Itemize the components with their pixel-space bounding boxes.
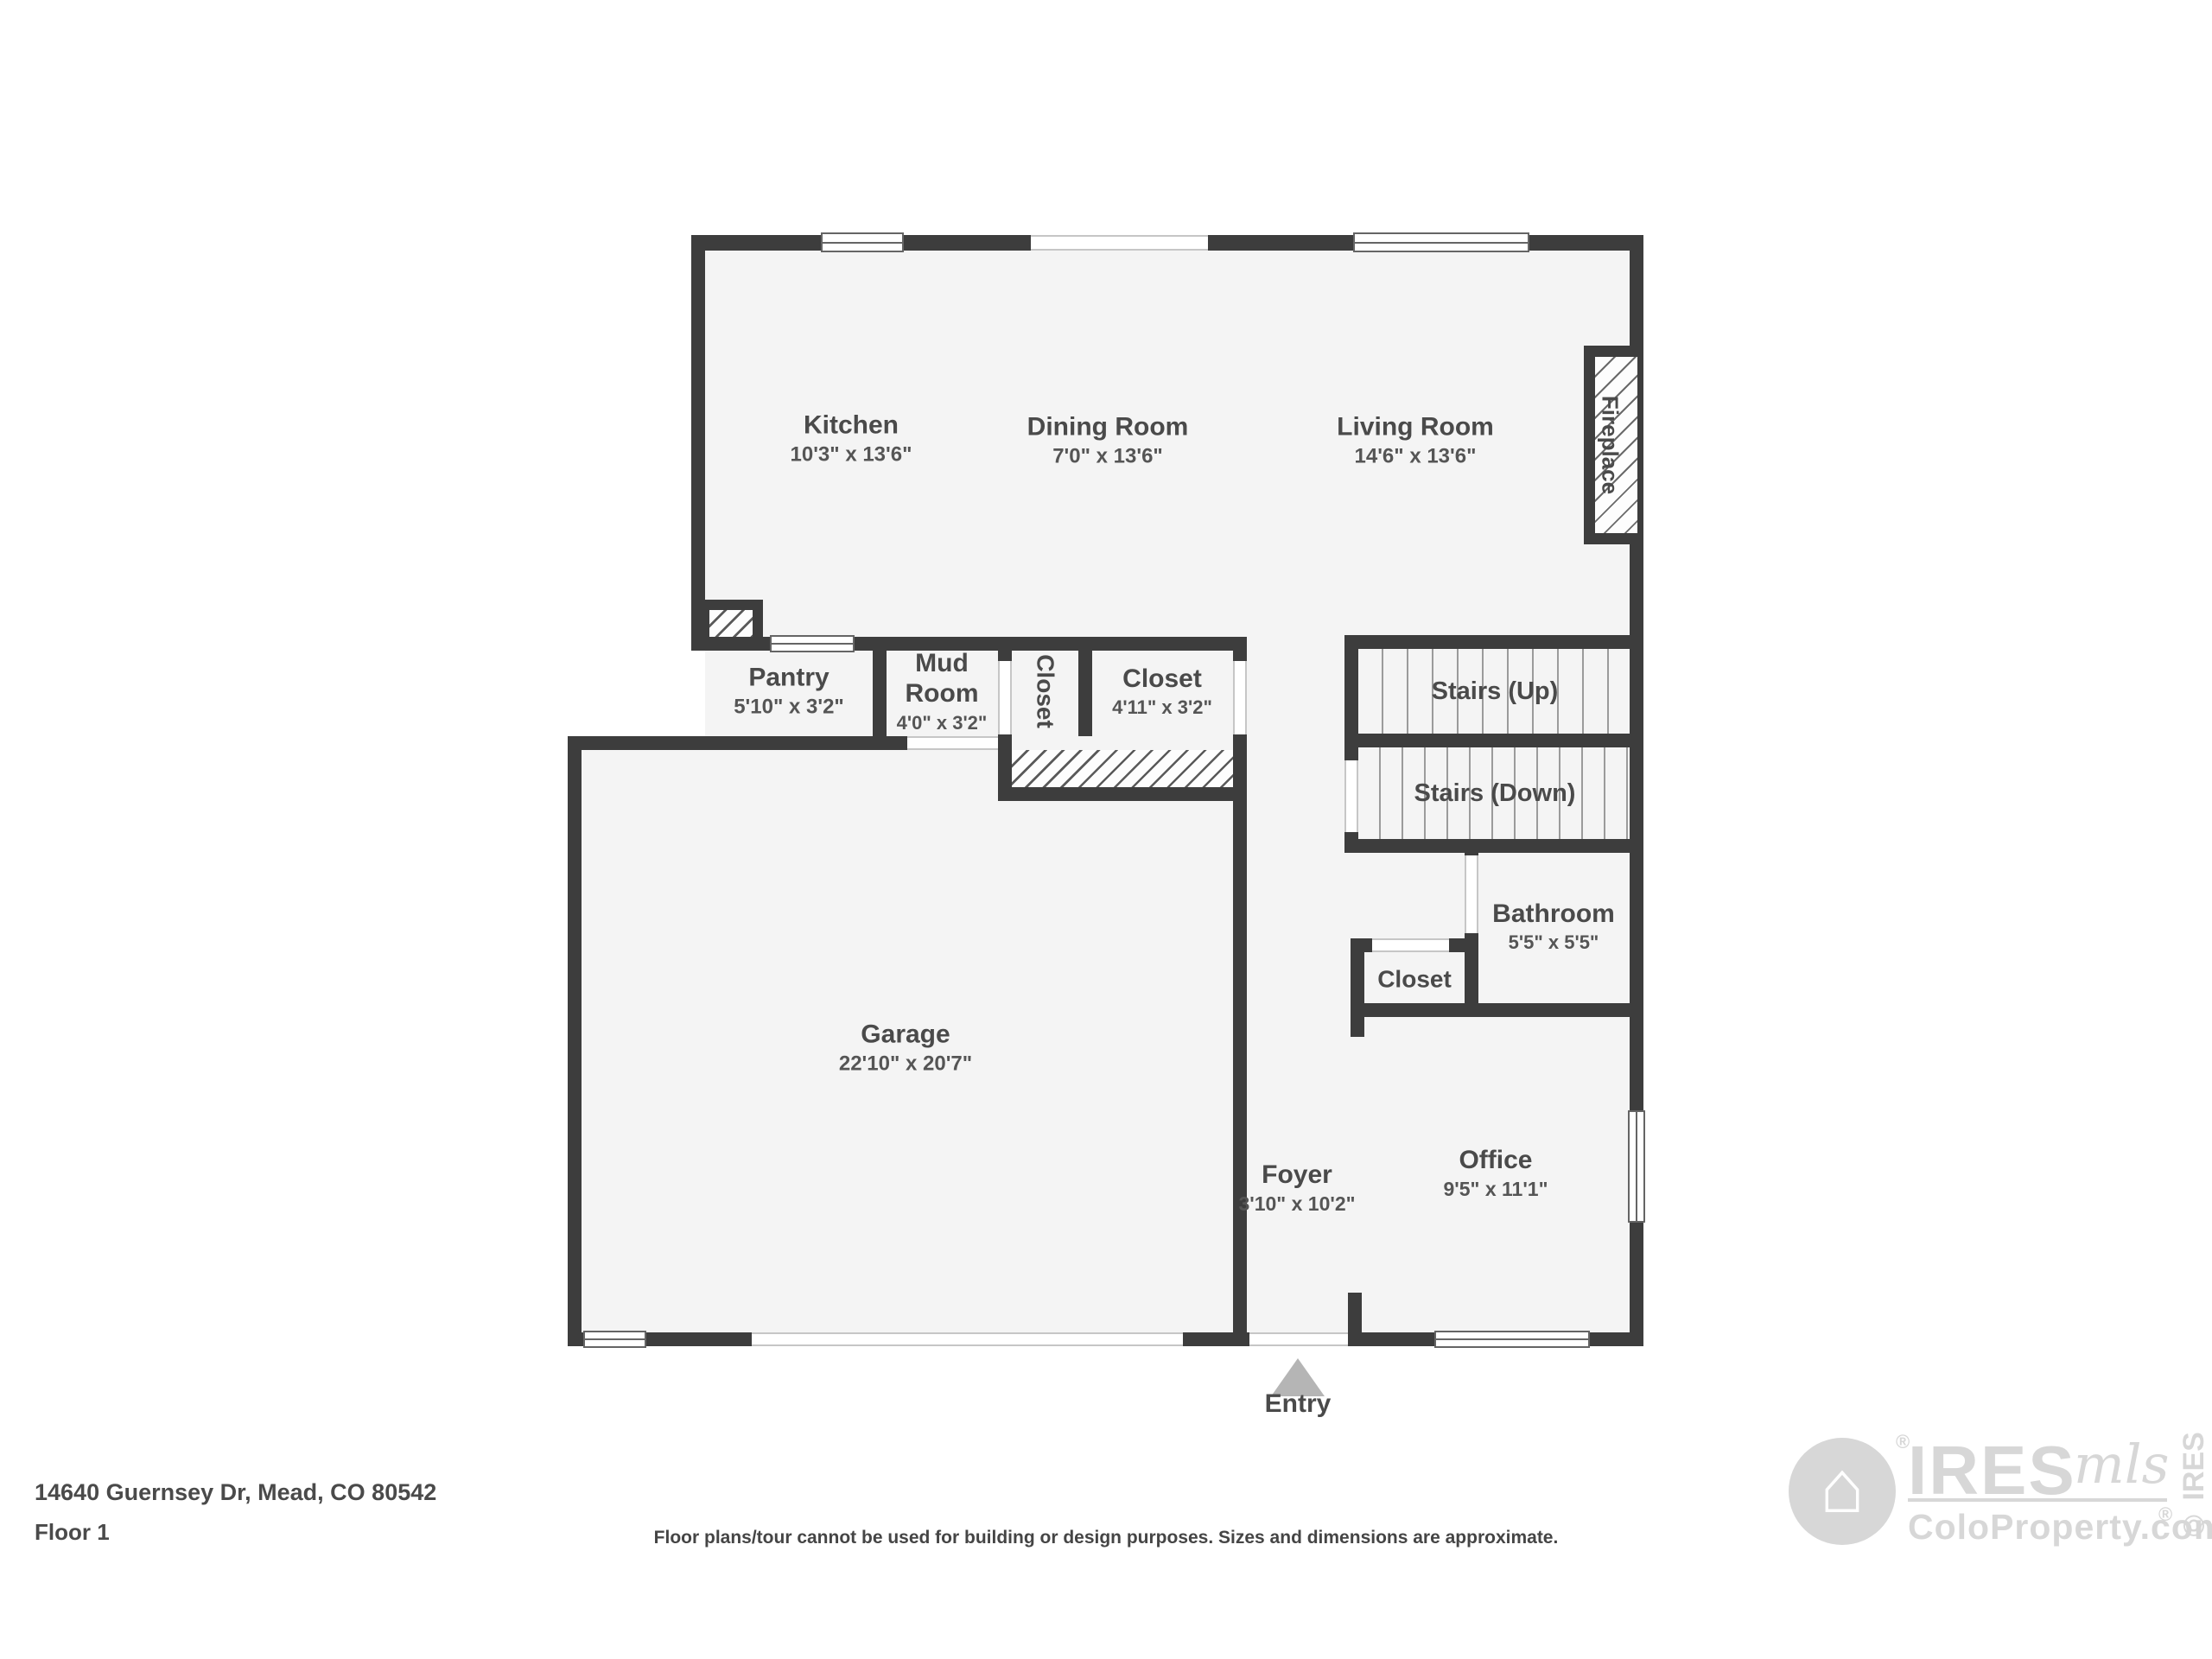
room-closet-mud-dims: 4'11" x 3'2" (1112, 696, 1212, 719)
mls-script: mls (2074, 1438, 2169, 1491)
room-mud-dims: 4'0" x 3'2" (885, 712, 999, 734)
wall-band-bottom (998, 787, 1247, 801)
fireplace-label: Fireplace (1597, 396, 1624, 494)
room-stairs-up-name: Stairs (Up) (1432, 677, 1559, 706)
opening-mudroom-door (907, 736, 998, 750)
room-dining-dims: 7'0" x 13'6" (1027, 445, 1189, 469)
floor-plan-page: Fireplace Kitchen 10'3" x 13'6" Dining R… (0, 0, 2212, 1659)
room-bathroom-dims: 5'5" x 5'5" (1492, 931, 1615, 954)
window-pantry-top (770, 635, 855, 652)
room-closet-mud: Closet 4'11" x 3'2" (1112, 664, 1212, 719)
window-kitchen-top (821, 232, 904, 252)
opening-closet-hall-door (998, 661, 1012, 734)
room-foyer: Foyer 3'10" x 10'2" (1238, 1160, 1355, 1217)
room-foyer-dims: 3'10" x 10'2" (1238, 1193, 1355, 1217)
wall-entry-stub (1348, 1293, 1362, 1346)
house-glyph-icon: ⌂ (1820, 1450, 1865, 1524)
room-office-name: Office (1443, 1145, 1548, 1175)
ires-logo: ⌂ ® IRES mls ColoProperty.com ® © IRES (1782, 1427, 2212, 1566)
room-bathroom-name: Bathroom (1492, 899, 1615, 929)
hatch-band-above-garage (1012, 750, 1233, 787)
room-office-dims: 9'5" x 11'1" (1443, 1179, 1548, 1202)
address-text: 14640 Guernsey Dr, Mead, CO 80542 (35, 1479, 436, 1506)
room-dining-name: Dining Room (1027, 412, 1189, 442)
room-stairs-down-name: Stairs (Down) (1414, 779, 1576, 808)
room-mud: Mud Room 4'0" x 3'2" (885, 648, 999, 734)
room-living: Living Room 14'6" x 13'6" (1337, 412, 1494, 470)
room-pantry: Pantry 5'10" x 3'2" (734, 663, 844, 721)
wall-stairs-middle (1344, 734, 1643, 747)
room-kitchen-dims: 10'3" x 13'6" (791, 443, 912, 467)
room-dining: Dining Room 7'0" x 13'6" (1027, 412, 1189, 470)
room-kitchen-name: Kitchen (791, 410, 912, 441)
room-closet-hall: Closet (1031, 654, 1059, 728)
opening-entry-door (1249, 1332, 1348, 1346)
room-pantry-name: Pantry (734, 663, 844, 693)
copyright-vertical-text: © IRES (2177, 1429, 2211, 1541)
room-stairs-down: Stairs (Down) (1414, 779, 1576, 808)
room-stairs-up: Stairs (Up) (1432, 677, 1559, 706)
room-office: Office 9'5" x 11'1" (1443, 1145, 1548, 1202)
wall-closet-divider (1078, 637, 1092, 736)
wall-garage-left (568, 736, 582, 1346)
opening-stairs-down (1344, 760, 1358, 832)
room-foyer-name: Foyer (1238, 1160, 1355, 1190)
room-closet-mud-name: Closet (1112, 664, 1212, 694)
room-living-dims: 14'6" x 13'6" (1337, 445, 1494, 469)
room-garage-name: Garage (839, 1020, 972, 1050)
wall-stairs-top (1344, 635, 1643, 649)
room-living-name: Living Room (1337, 412, 1494, 442)
wall-office-top (1351, 1003, 1643, 1017)
room-mud-name: Mud Room (885, 648, 999, 709)
room-closet-hall-name: Closet (1031, 654, 1059, 728)
opening-dining-top (1031, 235, 1208, 251)
wall-closet-bath-left (1351, 938, 1364, 1037)
opening-garage-door (752, 1332, 1183, 1346)
hatch-box-fill (709, 610, 753, 639)
window-garage-bottom (583, 1331, 646, 1348)
wall-left-upper (691, 235, 705, 651)
room-pantry-dims: 5'10" x 3'2" (734, 696, 844, 720)
opening-bathroom-door (1465, 855, 1478, 933)
wall-stairs-bottom (1344, 839, 1643, 853)
room-closet-bath-name: Closet (1377, 964, 1452, 993)
room-garage-dims: 22'10" x 20'7" (839, 1052, 972, 1077)
wall-garage-right (1233, 637, 1247, 1346)
site-registered-mark: ® (2158, 1503, 2172, 1526)
entry-label: Entry (1265, 1389, 1332, 1419)
window-living-top (1353, 232, 1529, 252)
disclaimer-text: Floor plans/tour cannot be used for buil… (654, 1528, 1559, 1548)
window-office-bottom (1434, 1331, 1590, 1348)
window-office-right (1628, 1110, 1645, 1223)
ires-house-icon: ⌂ (1789, 1438, 1896, 1545)
logo-divider (1908, 1498, 2167, 1502)
room-bathroom: Bathroom 5'5" x 5'5" (1492, 899, 1615, 954)
opening-closet-bath-door (1372, 938, 1449, 952)
opening-closet-mud-door (1233, 661, 1247, 734)
room-closet-bath: Closet (1377, 964, 1452, 993)
floor-label: Floor 1 (35, 1519, 110, 1546)
room-garage: Garage 22'10" x 20'7" (839, 1020, 972, 1077)
ires-wordmark: IRES (1908, 1436, 2076, 1505)
room-kitchen: Kitchen 10'3" x 13'6" (791, 410, 912, 468)
